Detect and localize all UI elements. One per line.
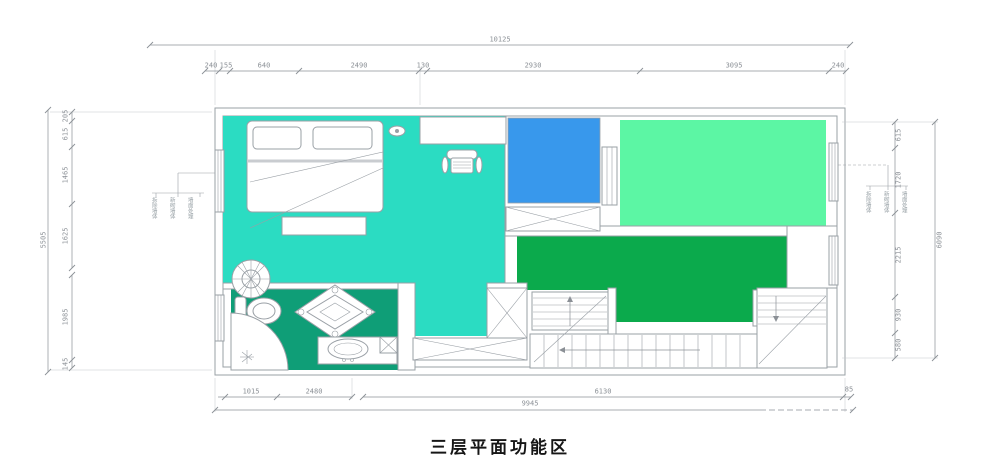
dim-label: 615 xyxy=(63,128,70,141)
dim-label: 155 xyxy=(220,63,233,70)
window-left-upper xyxy=(215,150,224,212)
window-left-lower xyxy=(215,295,224,341)
dim-label: 85 xyxy=(845,387,853,394)
bed xyxy=(247,121,383,228)
dim-label: 6130 xyxy=(595,389,612,396)
wall-stair-left xyxy=(608,288,616,338)
bedside-bench xyxy=(282,217,366,235)
dim-label: 580 xyxy=(896,339,903,352)
wardrobe-crossed xyxy=(506,207,600,231)
stair-flight-right xyxy=(757,288,827,368)
dim-label: 9945 xyxy=(522,401,539,408)
dim-label: 1720 xyxy=(896,172,903,189)
dim-label: 5505 xyxy=(41,232,48,249)
dim-label: 145 xyxy=(63,358,70,371)
dim-label: 205 xyxy=(63,110,70,123)
desk-chair xyxy=(442,150,482,173)
dim-label: 640 xyxy=(258,63,271,70)
wall-note-line: 墙面处理 xyxy=(900,191,906,213)
dim-label: 1465 xyxy=(63,167,70,184)
top-cabinet xyxy=(420,117,506,144)
dim-label: 6090 xyxy=(937,232,944,249)
ceiling-lamp-icon xyxy=(389,126,405,136)
wall-note-line: 拆除墙体 xyxy=(150,197,156,219)
wall-note-line: 新砌墙体 xyxy=(882,191,888,213)
dim-label: 1015 xyxy=(243,389,260,396)
dim-label: 1985 xyxy=(63,309,70,326)
dim-label: 2480 xyxy=(306,389,323,396)
corridor-cabinet-crossed xyxy=(413,338,527,360)
dim-label: 240 xyxy=(832,63,845,70)
wall-note-line: 新砌墙体 xyxy=(168,197,174,219)
mint-room-floor xyxy=(620,120,826,226)
dim-label: 240 xyxy=(205,63,218,70)
blue-zone-floor xyxy=(508,118,600,203)
dim-label: 2215 xyxy=(896,247,903,264)
plan-title: 三层平面功能区 xyxy=(0,433,1000,458)
left-note-leader xyxy=(152,173,215,197)
wall-bathroom-right xyxy=(398,283,415,370)
dim-label: 1625 xyxy=(63,228,70,245)
dim-label: 930 xyxy=(896,309,903,322)
window-right-lower xyxy=(829,236,838,285)
stair-flight-up xyxy=(532,292,608,330)
dim-label: 615 xyxy=(896,129,903,142)
shaft-crossed xyxy=(487,288,527,338)
wall-note-line: 墙面处理 xyxy=(186,197,192,219)
dim-label: 10125 xyxy=(489,37,510,44)
floorplan-drawing xyxy=(0,0,1000,470)
floorplan-canvas: 1012524015564024901302930309524055052056… xyxy=(0,0,1000,470)
dim-label: 2490 xyxy=(351,63,368,70)
window-partition xyxy=(602,147,617,205)
corridor-floor xyxy=(415,288,487,336)
wall-note-line: 拆除墙体 xyxy=(864,191,870,213)
window-right-upper xyxy=(829,143,838,201)
sink-counter xyxy=(318,337,397,364)
dim-label: 2930 xyxy=(525,63,542,70)
dim-label: 3095 xyxy=(726,63,743,70)
dim-label: 130 xyxy=(417,63,430,70)
potted-plant xyxy=(232,260,270,298)
